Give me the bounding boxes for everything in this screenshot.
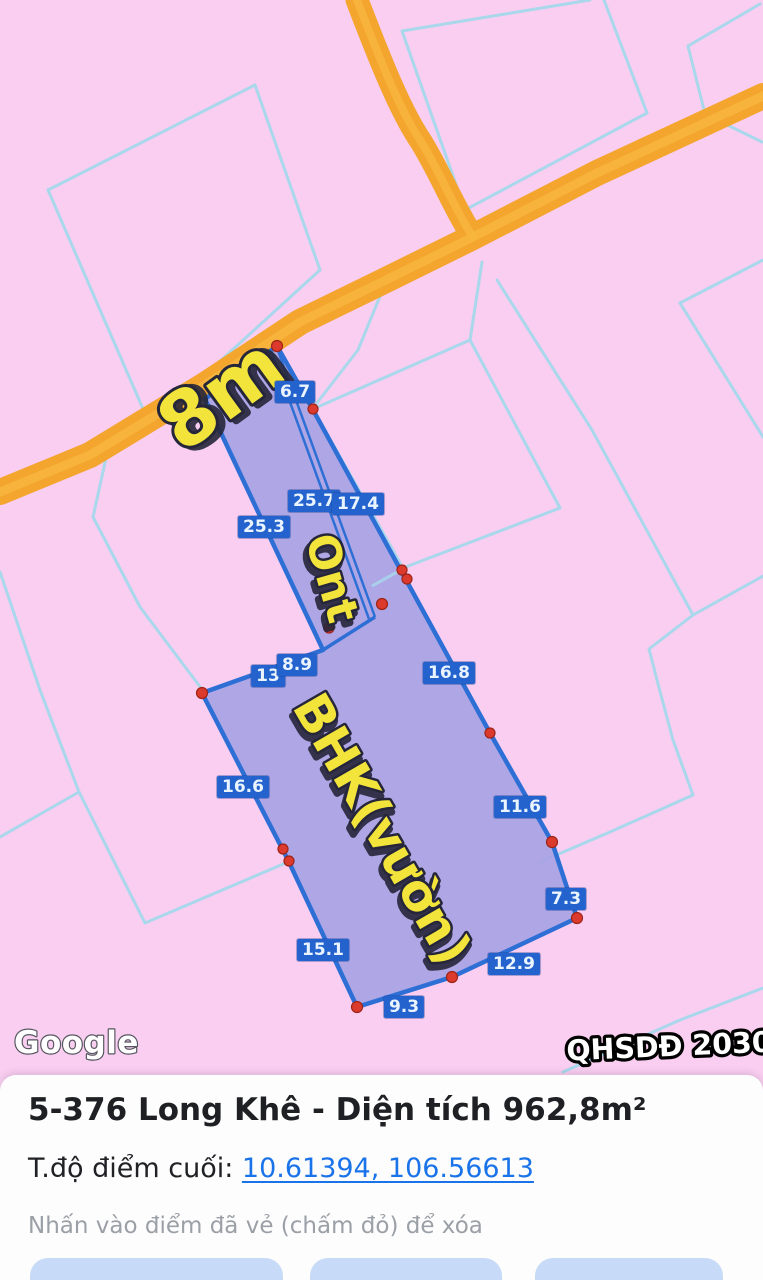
measurement-12-9: 12.9 — [488, 953, 540, 975]
measurement-16-8: 16.8 — [423, 662, 475, 684]
google-logo: Google — [14, 1025, 139, 1061]
drawn-point[interactable] — [308, 404, 318, 414]
measurement-15-1: 15.1 — [297, 939, 349, 961]
measurement-9-3: 9.3 — [384, 996, 424, 1018]
parcel-outline — [693, 576, 763, 615]
last-point-coords: T.độ điểm cuối: 10.61394, 106.56613 — [28, 1153, 748, 1184]
parcel-outline — [93, 440, 204, 692]
measurement-6-7: 6.7 — [275, 381, 315, 403]
action-button-1[interactable] — [30, 1258, 283, 1280]
info-panel: 5-376 Long Khê - Diện tích 962,8m² T.độ … — [0, 1075, 763, 1280]
drawn-point[interactable] — [447, 972, 458, 983]
map-svg: 8m 8m Ont Ont BHK(vườn) BHK(vườn) Google… — [0, 0, 763, 1090]
parcel-outline — [680, 260, 763, 437]
area-label: Diện tích — [336, 1092, 503, 1128]
land-map-app: 8m 8m Ont Ont BHK(vườn) BHK(vườn) Google… — [0, 0, 763, 1280]
roads — [0, 0, 763, 492]
coord-label: T.độ điểm cuối: — [28, 1153, 242, 1184]
parcel-id: 5-376 Long Khê — [28, 1092, 301, 1128]
drawn-point[interactable] — [377, 599, 388, 610]
title-separator: - — [301, 1092, 335, 1128]
measurement-11-6: 11.6 — [494, 796, 546, 818]
drawn-point[interactable] — [402, 574, 412, 584]
drawn-point[interactable] — [485, 728, 495, 738]
parcel-outline — [470, 262, 482, 340]
measurement-25-3: 25.3 — [238, 516, 290, 538]
action-button-2[interactable] — [310, 1258, 502, 1280]
drawn-point[interactable] — [284, 856, 294, 866]
measurement-17-4: 17.4 — [332, 493, 384, 515]
drawn-point[interactable] — [547, 837, 558, 848]
parcel-title: 5-376 Long Khê - Diện tích 962,8m² — [28, 1092, 748, 1128]
drawn-point[interactable] — [397, 565, 407, 575]
parcel-outline — [0, 792, 79, 837]
plan-badge: QHSDĐ 2030 — [566, 1026, 763, 1068]
delete-point-hint: Nhấn vào điểm đã vẻ (chấm đỏ) để xóa — [28, 1213, 748, 1239]
map-canvas[interactable]: 8m 8m Ont Ont BHK(vườn) BHK(vườn) Google… — [0, 0, 763, 1090]
drawn-point[interactable] — [352, 1002, 363, 1013]
drawn-point[interactable] — [278, 844, 288, 854]
drawn-point[interactable] — [197, 688, 208, 699]
drawn-point[interactable] — [572, 913, 583, 924]
parcel-outline — [497, 280, 693, 862]
coord-link[interactable]: 10.61394, 106.56613 — [242, 1153, 534, 1184]
measurement-16-6: 16.6 — [217, 776, 269, 798]
area-value: 962,8m² — [503, 1092, 647, 1128]
measurement-8-9: 8.9 — [277, 654, 317, 676]
measurement-7-3: 7.3 — [546, 888, 586, 910]
action-button-3[interactable] — [535, 1258, 723, 1280]
